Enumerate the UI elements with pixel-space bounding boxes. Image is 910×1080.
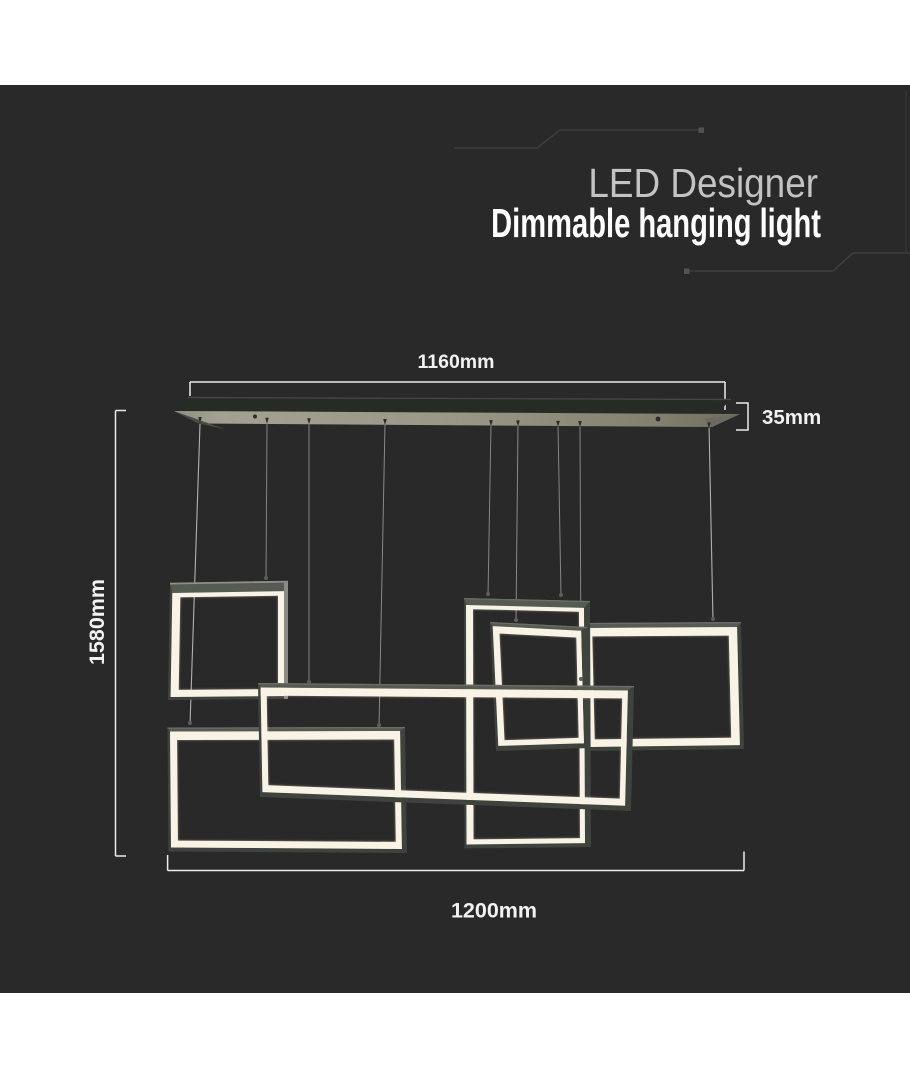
svg-text:Dimmable hanging light: Dimmable hanging light xyxy=(491,200,821,246)
svg-text:1160mm: 1160mm xyxy=(418,351,495,373)
svg-text:1200mm: 1200mm xyxy=(451,899,537,923)
svg-text:1580mm: 1580mm xyxy=(85,579,109,665)
svg-text:35mm: 35mm xyxy=(762,406,821,429)
